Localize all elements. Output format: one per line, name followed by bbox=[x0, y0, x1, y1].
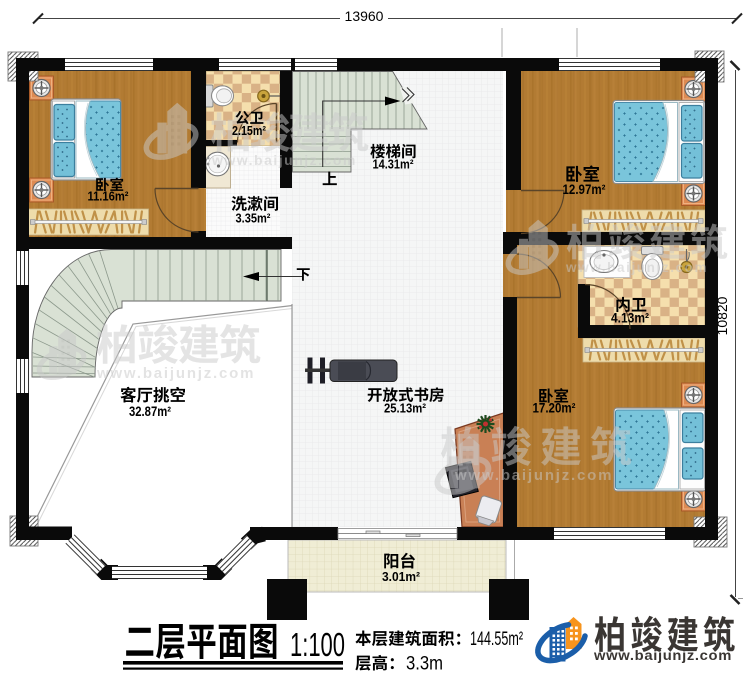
svg-text:32.87m²: 32.87m² bbox=[129, 404, 171, 419]
svg-text:1:100: 1:100 bbox=[290, 626, 345, 663]
svg-text:11.16m²: 11.16m² bbox=[88, 189, 130, 204]
svg-text:3.01m²: 3.01m² bbox=[382, 569, 421, 584]
svg-text:12.97m²: 12.97m² bbox=[563, 182, 606, 197]
svg-text:3.35m²: 3.35m² bbox=[236, 211, 272, 226]
svg-text:17.20m²: 17.20m² bbox=[533, 401, 576, 416]
svg-text:14.31m²: 14.31m² bbox=[373, 157, 415, 172]
svg-text:13960: 13960 bbox=[345, 8, 384, 24]
svg-text:144.55m²: 144.55m² bbox=[470, 629, 523, 650]
svg-text:www.baijunjz.com: www.baijunjz.com bbox=[565, 260, 708, 275]
svg-text:3.3m: 3.3m bbox=[406, 654, 443, 675]
svg-text:www.baijunjz.com: www.baijunjz.com bbox=[96, 365, 255, 382]
svg-text:www.baijunjz.com: www.baijunjz.com bbox=[211, 152, 357, 168]
svg-text:25.13m²: 25.13m² bbox=[384, 401, 427, 416]
svg-text:www.baijunjz.com: www.baijunjz.com bbox=[593, 648, 732, 663]
svg-text:2.15m²: 2.15m² bbox=[232, 124, 266, 138]
svg-text:4.13m²: 4.13m² bbox=[611, 311, 649, 326]
svg-text:www.baijunjz.com: www.baijunjz.com bbox=[454, 467, 613, 484]
svg-text:10820: 10820 bbox=[714, 296, 730, 335]
